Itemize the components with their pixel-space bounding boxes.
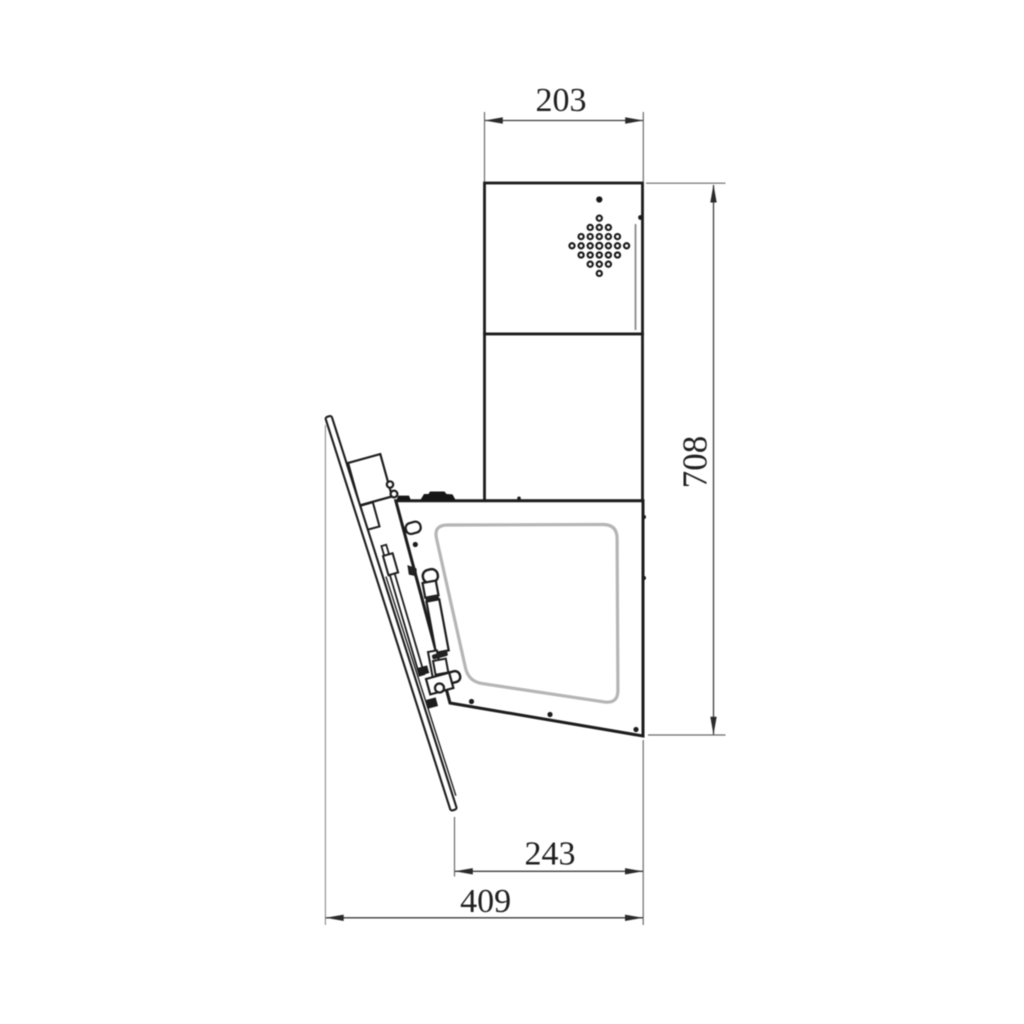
svg-text:203: 203 xyxy=(536,82,587,119)
svg-text:243: 243 xyxy=(525,836,576,873)
svg-text:409: 409 xyxy=(460,883,511,920)
svg-text:708: 708 xyxy=(676,436,715,489)
